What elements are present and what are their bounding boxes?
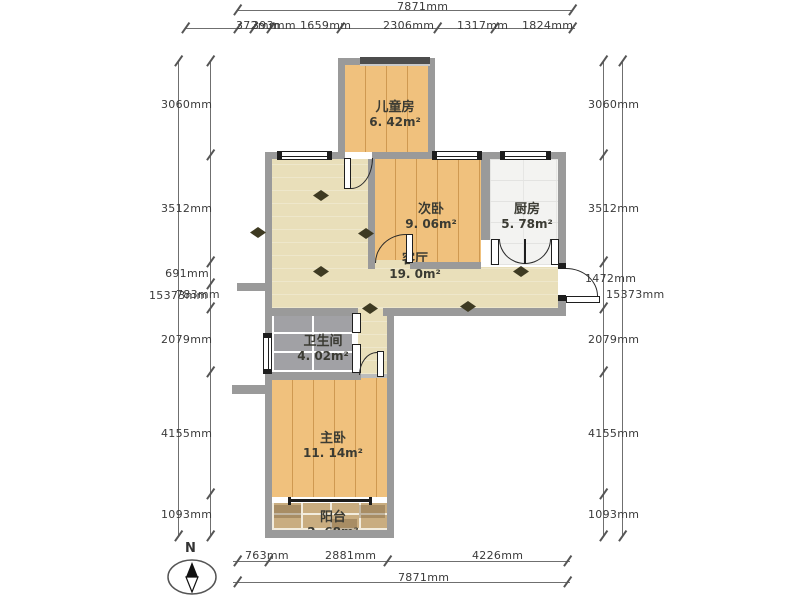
dim-line-right-segments — [603, 61, 604, 536]
dim-bottom-seg-0: 763mm — [245, 549, 289, 562]
children-room-door-leaf — [344, 158, 351, 189]
dim-top-seg-4: 1317mm — [457, 19, 508, 32]
wall-children-left — [338, 58, 345, 152]
dim-left-total: 15373mm — [149, 289, 208, 302]
balcony-slider-end-right — [369, 497, 372, 505]
wall-balcony-bottom — [265, 530, 394, 538]
kitchen-door-frame-right — [551, 239, 559, 265]
entry-door-leaf — [566, 296, 600, 303]
room-area: 5. 78m² — [501, 218, 553, 231]
diamond-motif-icon — [250, 227, 266, 238]
balcony-tile-patch — [359, 505, 385, 518]
dim-top-seg-5: 1824mm — [522, 19, 573, 32]
dim-right-seg-4: 4155mm — [588, 427, 639, 440]
second-bedroom-window — [432, 151, 482, 160]
room-name: 阳台 — [307, 511, 359, 526]
wall-stub-left-upper — [237, 283, 265, 291]
wall-kitchen-left — [481, 159, 490, 240]
room-name: 主卧 — [303, 432, 363, 447]
wall-second-bedroom-bottom — [410, 262, 481, 269]
dim-top-total: 7871mm — [397, 0, 448, 13]
wall-bathroom-bottom — [265, 372, 361, 380]
room-name: 卫生间 — [297, 335, 349, 350]
bathroom-window — [263, 333, 272, 374]
bathroom-partition-upper — [352, 313, 361, 333]
dim-bottom-seg-1: 2881mm — [325, 549, 376, 562]
dim-left-seg-2: 691mm — [161, 267, 209, 280]
dim-left-seg-5: 4155mm — [161, 427, 209, 440]
dim-top-seg-3: 2306mm — [383, 19, 434, 32]
dim-top-seg-1: 393mm — [252, 19, 296, 32]
wall-exterior-right-upper — [558, 152, 566, 268]
room-name: 儿童房 — [369, 101, 421, 116]
dim-left-seg-1: 3512mm — [161, 202, 209, 215]
kitchen-door-center-post — [524, 239, 526, 264]
wall-hall-bottom — [383, 308, 566, 316]
dim-bottom-seg-2: 4226mm — [472, 549, 523, 562]
master-bedroom-door-leaf — [377, 351, 384, 377]
dim-right-seg-5: 1093mm — [588, 508, 639, 521]
dim-right-seg-3: 2079mm — [588, 333, 639, 346]
dim-right-seg-0: 3060mm — [588, 98, 639, 111]
wall-second-bedroom-bottom-stub — [368, 262, 375, 269]
room-label-second-bedroom: 次卧 9. 06m² — [405, 203, 457, 231]
balcony-tile-patch — [274, 505, 301, 518]
room-area: 19. 0m² — [389, 268, 441, 281]
room-label-bathroom: 卫生间 4. 02m² — [297, 335, 349, 363]
dim-left-seg-0: 3060mm — [161, 98, 209, 111]
entry-door-jamb-top — [558, 263, 566, 269]
balcony-slider — [290, 499, 370, 502]
room-label-kitchen: 厨房 5. 78m² — [501, 203, 553, 231]
second-bedroom-door-leaf — [406, 234, 413, 263]
wall-stub-left-lower — [232, 385, 265, 394]
wall-bathroom-top — [265, 308, 358, 316]
room-area: 11. 14m² — [303, 447, 363, 460]
room-area: 6. 42m² — [369, 116, 421, 129]
floor-plan: 儿童房 6. 42m² 次卧 9. 06m² 厨房 5. 78m² 客厅 19.… — [0, 0, 800, 600]
balcony-slider-end-left — [288, 497, 291, 505]
dim-right-seg-1: 3512mm — [588, 202, 639, 215]
room-area: 4. 02m² — [297, 350, 349, 363]
wall-lower-right — [387, 308, 394, 538]
living-room-window — [277, 151, 332, 160]
wall-children-right — [428, 58, 435, 152]
dim-top-seg-2: 1659mm — [300, 19, 351, 32]
kitchen-window — [500, 151, 551, 160]
entry-door-jamb-bottom — [558, 295, 566, 301]
room-area: 9. 06m² — [405, 218, 457, 231]
room-label-master-bedroom: 主卧 11. 14m² — [303, 432, 363, 460]
children-room-window — [360, 57, 430, 66]
kitchen-door-frame-left — [491, 239, 499, 265]
room-label-children: 儿童房 6. 42m² — [369, 101, 421, 129]
compass-icon — [165, 541, 221, 599]
room-name: 厨房 — [501, 203, 553, 218]
dim-right-total: 15373mm — [606, 288, 665, 301]
dim-bottom-total: 7871mm — [398, 571, 449, 584]
dim-left-seg-6: 1093mm — [161, 508, 209, 521]
dim-left-seg-4: 2079mm — [161, 333, 209, 346]
room-name: 次卧 — [405, 203, 457, 218]
